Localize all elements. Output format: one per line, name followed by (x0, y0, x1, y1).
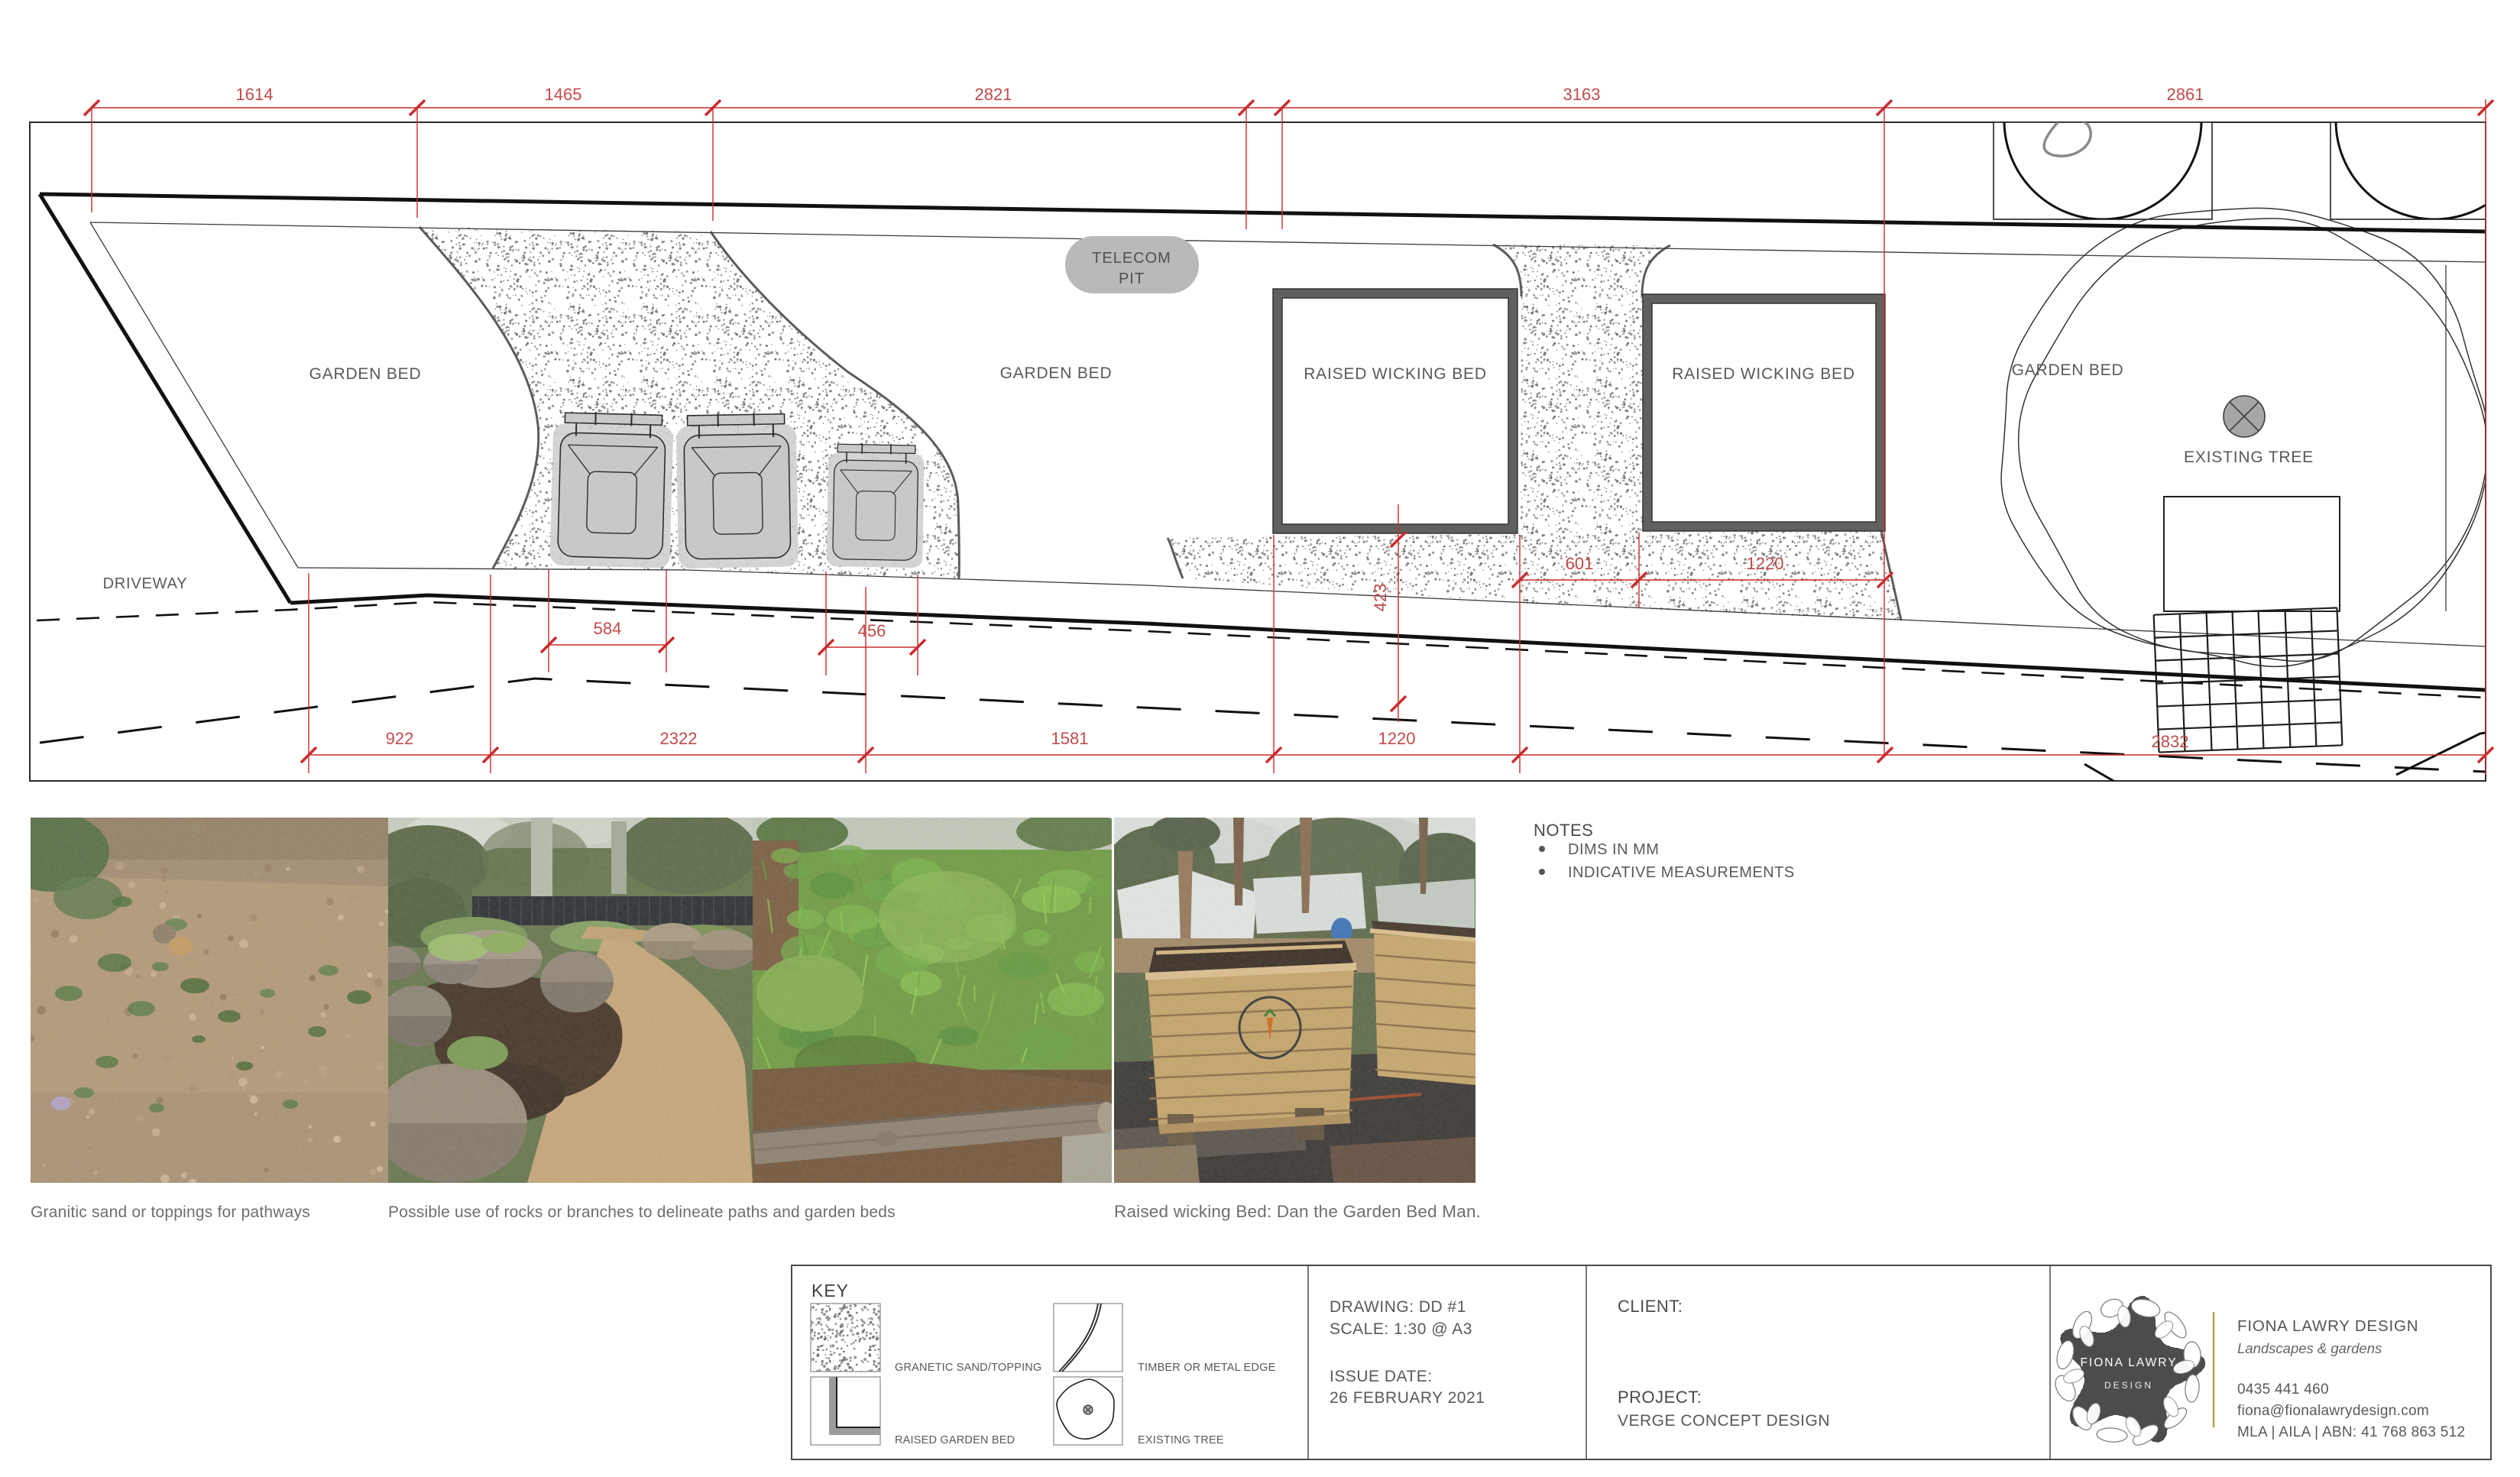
svg-text:Possible use of rocks or branc: Possible use of rocks or branches to del… (388, 1203, 896, 1221)
svg-text:423: 423 (1371, 584, 1390, 612)
svg-text:EXISTING TREE: EXISTING TREE (1138, 1434, 1224, 1446)
svg-text:922: 922 (386, 729, 414, 748)
svg-text:DESIGN: DESIGN (2104, 1380, 2153, 1391)
svg-text:2832: 2832 (2152, 732, 2189, 751)
svg-text:0435 441 460: 0435 441 460 (2237, 1381, 2329, 1398)
svg-text:1614: 1614 (236, 85, 274, 104)
svg-text:26 FEBRUARY 2021: 26 FEBRUARY 2021 (1330, 1389, 1485, 1407)
svg-text:2821: 2821 (975, 85, 1012, 104)
svg-text:CLIENT:: CLIENT: (1618, 1297, 1683, 1316)
svg-text:DIMS IN MM: DIMS IN MM (1568, 841, 1659, 858)
svg-text:601: 601 (1566, 554, 1594, 573)
svg-text:KEY: KEY (811, 1281, 849, 1300)
svg-text:GRANETIC SAND/TOPPING: GRANETIC SAND/TOPPING (895, 1362, 1041, 1374)
svg-text:RAISED WICKING BED: RAISED WICKING BED (1672, 365, 1855, 383)
svg-text:1465: 1465 (545, 85, 582, 104)
svg-text:fiona@fionalawrydesign.com: fiona@fionalawrydesign.com (2237, 1403, 2429, 1419)
svg-text:TELECOM: TELECOM (1092, 250, 1171, 267)
svg-text:Raised wicking Bed: Dan the Ga: Raised wicking Bed: Dan the Garden Bed M… (1114, 1202, 1481, 1221)
svg-text:DRIVEWAY: DRIVEWAY (103, 575, 188, 592)
svg-text:2322: 2322 (660, 729, 698, 748)
svg-text:1220: 1220 (1378, 729, 1416, 748)
svg-text:3163: 3163 (1563, 85, 1601, 104)
svg-text:RAISED WICKING BED: RAISED WICKING BED (1304, 365, 1487, 383)
svg-text:FIONA LAWRY: FIONA LAWRY (2080, 1356, 2177, 1369)
svg-text:456: 456 (858, 621, 886, 640)
svg-text:EXISTING TREE: EXISTING TREE (2184, 449, 2314, 466)
svg-text:FIONA LAWRY DESIGN: FIONA LAWRY DESIGN (2237, 1317, 2418, 1335)
svg-text:GARDEN BED: GARDEN BED (1000, 364, 1113, 382)
svg-text:2861: 2861 (2167, 85, 2204, 104)
svg-text:PROJECT:: PROJECT: (1618, 1388, 1702, 1407)
svg-text:1220: 1220 (1747, 554, 1784, 573)
svg-text:TIMBER OR METAL EDGE: TIMBER OR METAL EDGE (1138, 1362, 1276, 1374)
svg-text:584: 584 (594, 619, 622, 638)
svg-text:VERGE CONCEPT DESIGN: VERGE CONCEPT DESIGN (1618, 1412, 1830, 1430)
svg-text:RAISED GARDEN BED: RAISED GARDEN BED (895, 1434, 1015, 1446)
svg-text:Landscapes & gardens: Landscapes & gardens (2237, 1340, 2382, 1356)
svg-text:MLA | AILA | ABN: 41 768 863 5: MLA | AILA | ABN: 41 768 863 512 (2237, 1424, 2465, 1440)
svg-text:INDICATIVE MEASUREMENTS: INDICATIVE MEASUREMENTS (1568, 864, 1795, 881)
svg-text:DRAWING: DD #1: DRAWING: DD #1 (1330, 1298, 1466, 1316)
svg-text:1581: 1581 (1051, 729, 1089, 748)
svg-text:PIT: PIT (1119, 270, 1145, 287)
svg-text:Granitic sand or toppings for: Granitic sand or toppings for pathways (31, 1203, 310, 1221)
svg-text:NOTES: NOTES (1534, 821, 1593, 840)
svg-text:SCALE: 1:30 @ A3: SCALE: 1:30 @ A3 (1330, 1320, 1472, 1338)
svg-text:GARDEN BED: GARDEN BED (309, 365, 422, 383)
svg-text:ISSUE DATE:: ISSUE DATE: (1330, 1368, 1433, 1385)
svg-text:GARDEN BED: GARDEN BED (2012, 361, 2124, 379)
